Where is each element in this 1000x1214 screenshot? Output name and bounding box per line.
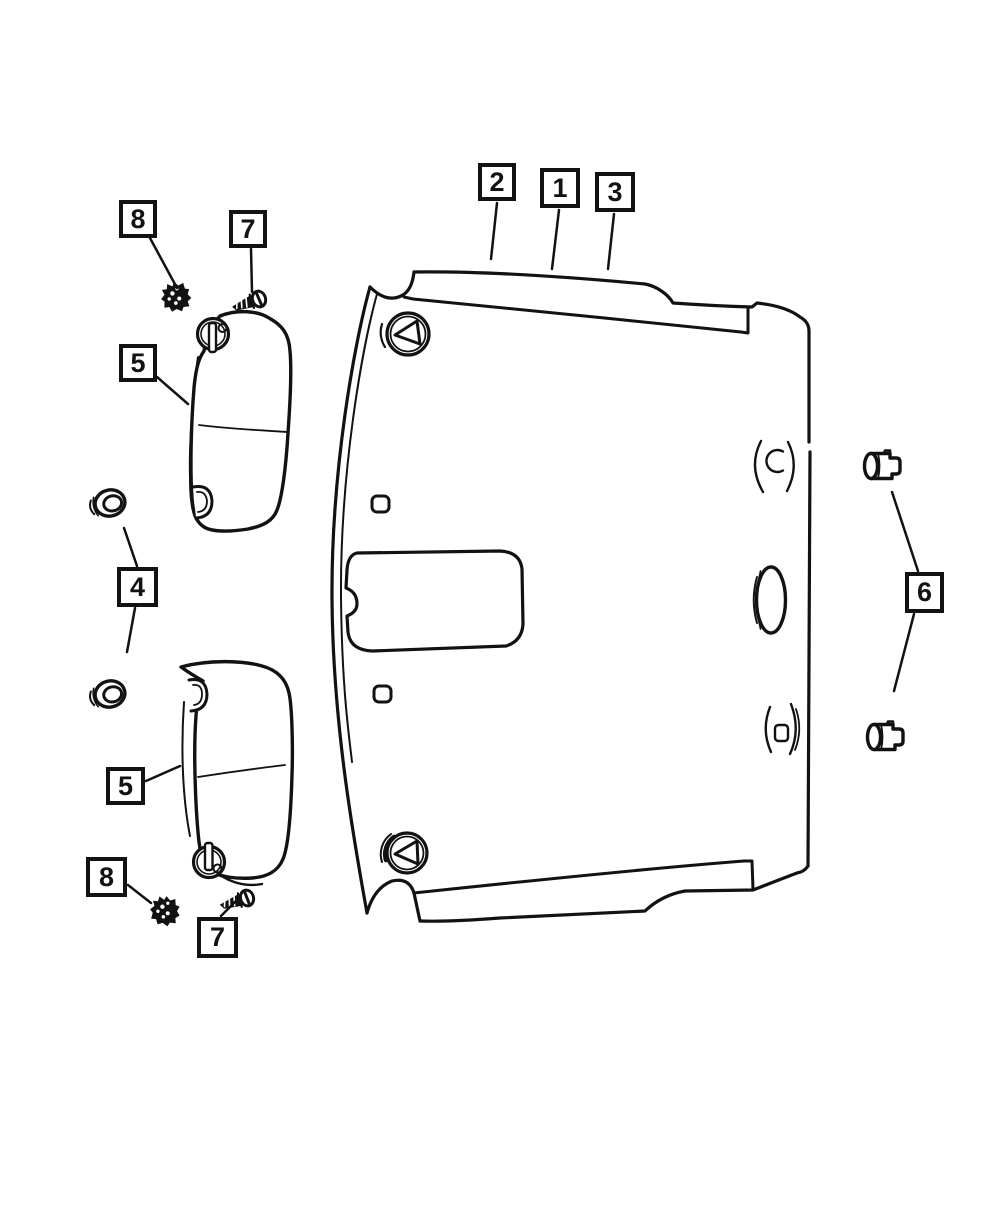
dome-lamp-bezel-front	[381, 313, 429, 355]
clip-hole-upper	[372, 496, 389, 512]
callout-box-7-lower: 7	[197, 917, 238, 958]
sun-visor-lower	[181, 662, 292, 885]
lamp-socket-upper	[865, 451, 901, 479]
courtesy-lamp-mark-upper	[755, 441, 794, 492]
star-nut-lower	[149, 895, 182, 928]
callout-box-2: 2	[478, 163, 516, 201]
headliner-panel-outline	[332, 272, 810, 921]
visor-edge-doubleline-lower	[182, 702, 190, 836]
visor-hook-lower	[189, 680, 207, 711]
grommet-upper	[87, 487, 127, 521]
console-cutout	[346, 551, 523, 651]
callout-box-4: 4	[117, 567, 158, 607]
callout-box-5-upper: 5	[119, 344, 157, 382]
clip-hole-lower	[374, 686, 391, 702]
dome-lamp-bezel-rear	[381, 833, 427, 873]
visor-crease-upper	[199, 425, 287, 432]
callout-box-7-upper: 7	[229, 210, 267, 248]
grommet-lower	[87, 678, 127, 712]
callout-box-8-lower: 8	[86, 857, 127, 897]
sun-visor-upper	[190, 312, 291, 531]
callout-box-8-upper: 8	[119, 200, 157, 238]
visor-crease-lower	[198, 765, 285, 777]
visor-hook-upper	[193, 487, 212, 518]
parts-diagram-canvas: 2 1 3 8 7 5 4 6 5 8 7	[0, 0, 1000, 1214]
courtesy-lamp-mark-lower	[766, 704, 800, 754]
callout-box-6: 6	[905, 572, 944, 613]
callout-box-1: 1	[540, 168, 580, 208]
grab-handle-recess	[754, 567, 786, 633]
callout-box-3: 3	[595, 172, 635, 212]
callout-box-5-lower: 5	[106, 767, 145, 805]
lamp-socket-lower	[868, 722, 904, 750]
